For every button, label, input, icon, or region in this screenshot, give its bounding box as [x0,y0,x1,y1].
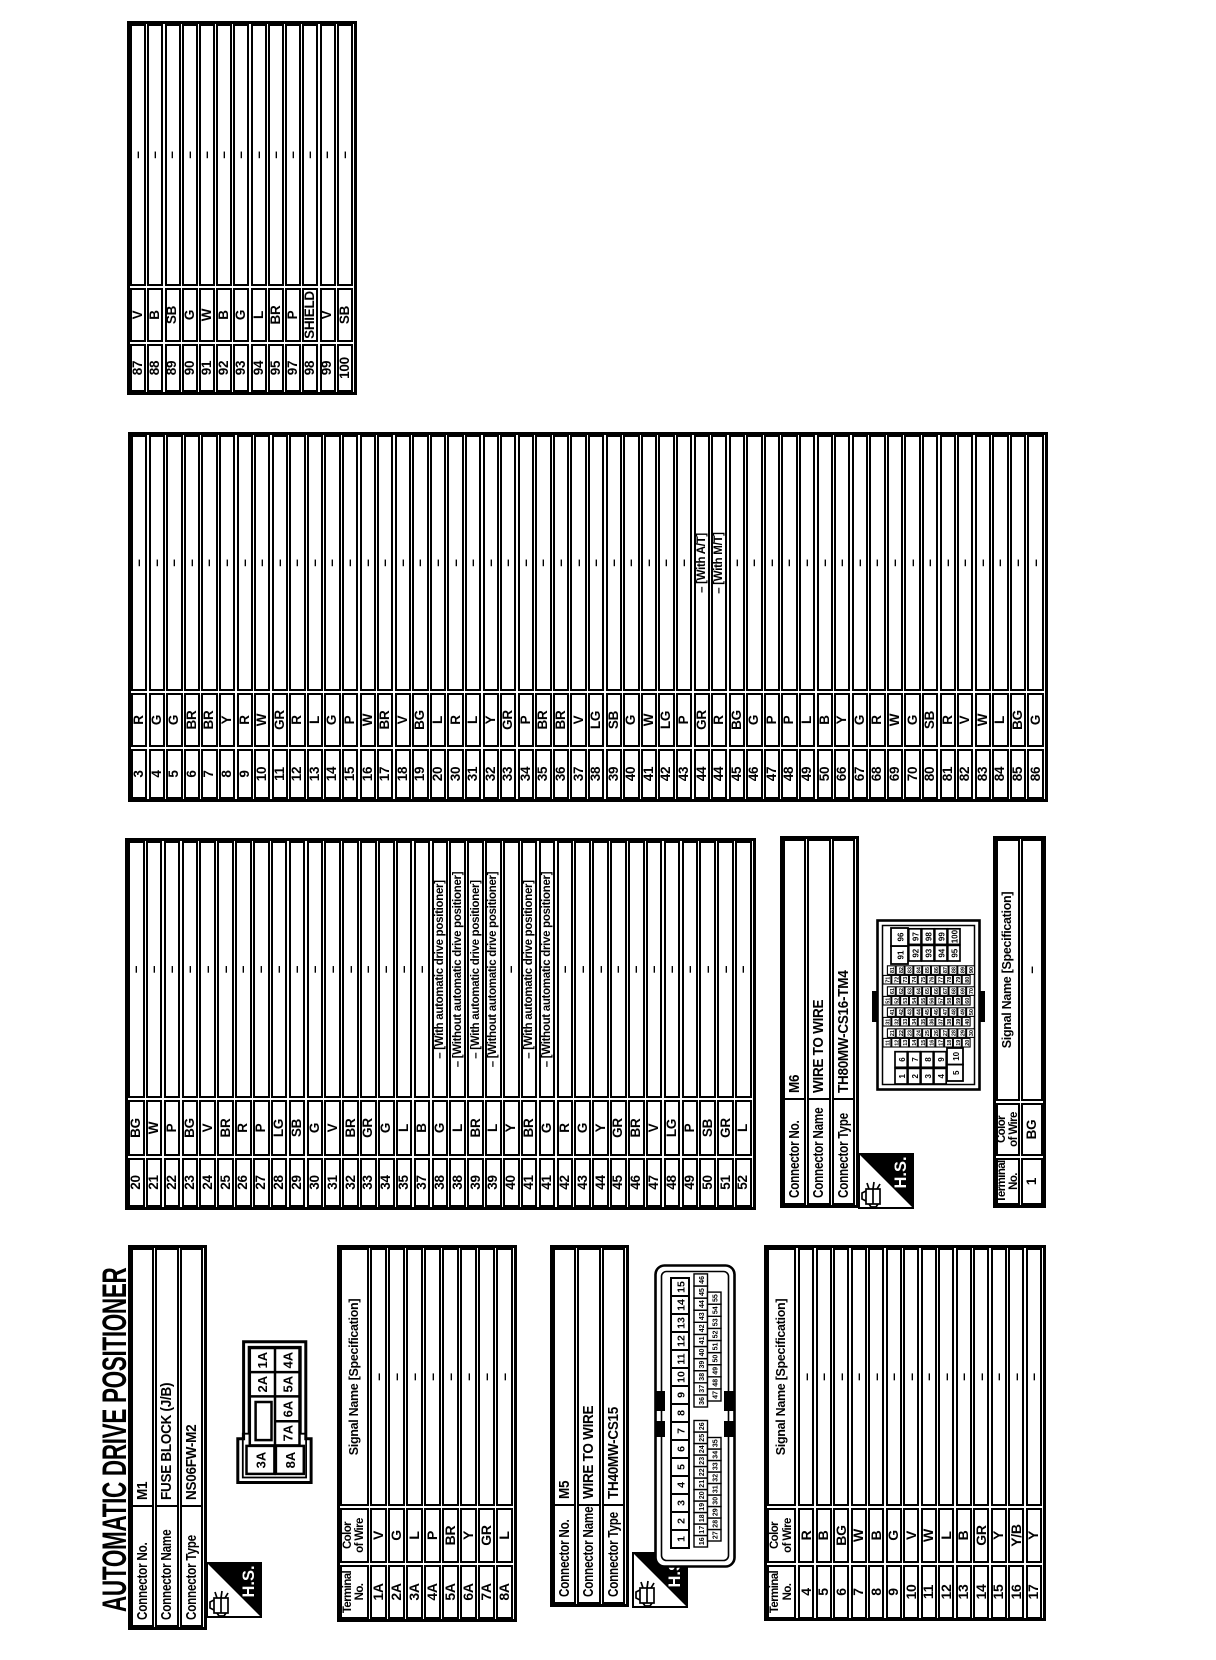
svg-text:87: 87 [943,967,949,973]
svg-text:71: 71 [886,977,892,983]
svg-text:12: 12 [894,1040,900,1046]
svg-text:92: 92 [912,948,921,957]
svg-text:13: 13 [676,1317,688,1329]
svg-text:25: 25 [925,1030,931,1036]
svg-text:4A: 4A [281,1351,296,1368]
svg-text:91: 91 [897,950,906,959]
svg-text:61: 61 [890,988,896,994]
svg-text:76: 76 [930,977,936,983]
svg-text:85: 85 [925,967,931,973]
svg-text:4: 4 [937,1073,946,1078]
svg-text:81: 81 [890,967,896,973]
svg-text:89: 89 [960,967,966,973]
svg-text:49: 49 [960,1009,966,1015]
svg-text:5: 5 [676,1464,688,1470]
svg-text:21: 21 [699,1480,706,1488]
svg-text:21: 21 [890,1030,896,1036]
svg-text:35: 35 [921,1019,927,1025]
svg-text:22: 22 [899,1030,905,1036]
svg-text:23: 23 [699,1457,706,1465]
svg-text:74: 74 [912,976,918,983]
svg-text:1: 1 [676,1536,688,1542]
svg-text:70: 70 [969,988,975,994]
svg-text:10: 10 [952,1051,961,1060]
svg-text:69: 69 [960,988,966,994]
svg-text:H.S.: H.S. [892,1156,910,1188]
svg-text:3: 3 [676,1500,688,1506]
svg-text:83: 83 [908,967,914,973]
svg-text:34: 34 [912,1018,918,1025]
svg-text:37: 37 [699,1385,706,1393]
svg-text:54: 54 [912,997,918,1004]
svg-text:66: 66 [934,988,940,994]
svg-text:34: 34 [712,1451,719,1459]
svg-text:17: 17 [699,1526,706,1534]
svg-text:1: 1 [898,1073,907,1078]
svg-text:6A: 6A [281,1400,296,1417]
svg-text:55: 55 [921,998,927,1004]
svg-text:32: 32 [712,1474,719,1482]
svg-text:99: 99 [938,932,947,941]
svg-text:7: 7 [676,1428,688,1434]
svg-text:97: 97 [912,932,921,941]
svg-text:36: 36 [699,1397,706,1405]
svg-text:63: 63 [908,988,914,994]
svg-text:46: 46 [934,1009,940,1015]
svg-text:22: 22 [699,1468,706,1476]
svg-text:30: 30 [969,1030,975,1036]
svg-text:18: 18 [947,1040,953,1046]
svg-text:31: 31 [712,1485,719,1493]
svg-text:9: 9 [937,1057,946,1062]
svg-text:20: 20 [965,1040,971,1046]
svg-text:49: 49 [712,1367,719,1375]
svg-text:39: 39 [956,1019,962,1025]
svg-text:72: 72 [894,977,900,983]
svg-text:51: 51 [712,1343,719,1351]
svg-text:28: 28 [712,1520,719,1528]
svg-text:40: 40 [965,1019,971,1025]
svg-text:33: 33 [903,1019,909,1025]
svg-text:H.S.: H.S. [240,1565,258,1597]
svg-text:51: 51 [886,998,892,1004]
svg-text:38: 38 [699,1373,706,1381]
svg-text:78: 78 [947,977,953,983]
svg-text:82: 82 [899,967,905,973]
svg-text:93: 93 [925,948,934,957]
svg-text:12: 12 [676,1335,688,1347]
svg-text:43: 43 [699,1312,706,1320]
svg-text:55: 55 [712,1294,719,1302]
svg-text:96: 96 [897,932,906,941]
svg-text:57: 57 [938,998,944,1004]
svg-text:23: 23 [908,1030,914,1036]
svg-text:52: 52 [712,1330,719,1338]
svg-text:28: 28 [952,1030,958,1036]
svg-text:3: 3 [924,1073,933,1078]
svg-text:39: 39 [699,1361,706,1369]
svg-text:27: 27 [712,1531,719,1539]
svg-text:45: 45 [925,1009,931,1015]
svg-text:80: 80 [965,977,971,983]
svg-text:64: 64 [916,987,922,994]
svg-text:50: 50 [712,1355,719,1363]
svg-text:50: 50 [969,1009,975,1015]
svg-text:15: 15 [676,1281,688,1293]
svg-text:48: 48 [952,1009,958,1015]
svg-text:67: 67 [943,988,949,994]
svg-text:60: 60 [965,998,971,1004]
svg-text:37: 37 [938,1019,944,1025]
svg-text:8: 8 [676,1410,688,1416]
svg-text:79: 79 [956,977,962,983]
svg-text:59: 59 [956,998,962,1004]
svg-text:7A: 7A [281,1424,296,1441]
svg-text:6: 6 [898,1057,907,1062]
svg-text:26: 26 [699,1422,706,1430]
svg-text:14: 14 [912,1039,918,1046]
svg-text:38: 38 [947,1019,953,1025]
svg-text:29: 29 [712,1508,719,1516]
svg-text:68: 68 [952,988,958,994]
svg-text:30: 30 [712,1497,719,1505]
svg-text:2: 2 [911,1073,920,1078]
svg-text:24: 24 [916,1029,922,1036]
svg-text:16: 16 [930,1040,936,1046]
svg-text:17: 17 [938,1040,944,1046]
svg-text:44: 44 [699,1300,706,1308]
svg-text:11: 11 [676,1353,688,1364]
svg-text:53: 53 [903,998,909,1004]
svg-text:33: 33 [712,1462,719,1470]
svg-text:52: 52 [894,998,900,1004]
svg-text:36: 36 [930,1019,936,1025]
svg-text:20: 20 [699,1491,706,1499]
svg-text:95: 95 [951,948,960,957]
svg-text:16: 16 [699,1537,706,1545]
svg-text:41: 41 [699,1336,706,1344]
svg-text:31: 31 [886,1019,892,1025]
svg-text:65: 65 [925,988,931,994]
svg-text:2: 2 [676,1518,688,1524]
svg-text:26: 26 [934,1030,940,1036]
svg-text:27: 27 [943,1030,949,1036]
svg-text:32: 32 [894,1019,900,1025]
svg-text:19: 19 [956,1040,962,1046]
svg-text:73: 73 [903,977,909,983]
svg-text:5A: 5A [281,1375,296,1392]
svg-text:2A: 2A [255,1375,270,1392]
svg-text:53: 53 [712,1318,719,1326]
svg-text:100: 100 [951,929,960,943]
svg-text:6: 6 [676,1446,688,1452]
svg-text:1A: 1A [255,1351,270,1368]
svg-text:44: 44 [916,1008,922,1015]
svg-text:86: 86 [934,967,940,973]
svg-text:75: 75 [921,977,927,983]
svg-text:8A: 8A [283,1451,298,1468]
svg-text:3A: 3A [254,1451,269,1468]
svg-text:45: 45 [699,1288,706,1296]
svg-text:47: 47 [943,1009,949,1015]
svg-text:7: 7 [911,1057,920,1062]
svg-text:10: 10 [676,1371,688,1383]
svg-text:54: 54 [712,1306,719,1314]
svg-text:46: 46 [699,1276,706,1284]
svg-text:14: 14 [676,1299,688,1311]
svg-text:94: 94 [938,948,947,957]
svg-text:58: 58 [947,998,953,1004]
svg-text:98: 98 [925,932,934,941]
svg-text:84: 84 [916,966,922,973]
svg-text:43: 43 [908,1009,914,1015]
svg-text:56: 56 [930,998,936,1004]
svg-text:9: 9 [676,1392,688,1398]
svg-text:77: 77 [938,977,944,983]
svg-text:42: 42 [899,1009,905,1015]
svg-text:62: 62 [899,988,905,994]
svg-text:25: 25 [699,1434,706,1442]
svg-text:13: 13 [903,1040,909,1046]
svg-text:48: 48 [712,1379,719,1387]
svg-text:11: 11 [886,1040,892,1046]
svg-text:42: 42 [699,1324,706,1332]
svg-text:24: 24 [699,1445,706,1453]
svg-text:88: 88 [952,967,958,973]
svg-text:90: 90 [969,967,975,973]
svg-text:29: 29 [960,1030,966,1036]
svg-text:41: 41 [890,1009,896,1015]
svg-text:15: 15 [921,1040,927,1046]
svg-text:8: 8 [924,1057,933,1062]
svg-text:19: 19 [699,1503,706,1511]
svg-text:4: 4 [676,1482,688,1488]
svg-text:40: 40 [699,1349,706,1357]
svg-text:18: 18 [699,1514,706,1522]
svg-text:5: 5 [952,1070,961,1075]
svg-text:35: 35 [712,1439,719,1447]
svg-text:47: 47 [712,1391,719,1399]
